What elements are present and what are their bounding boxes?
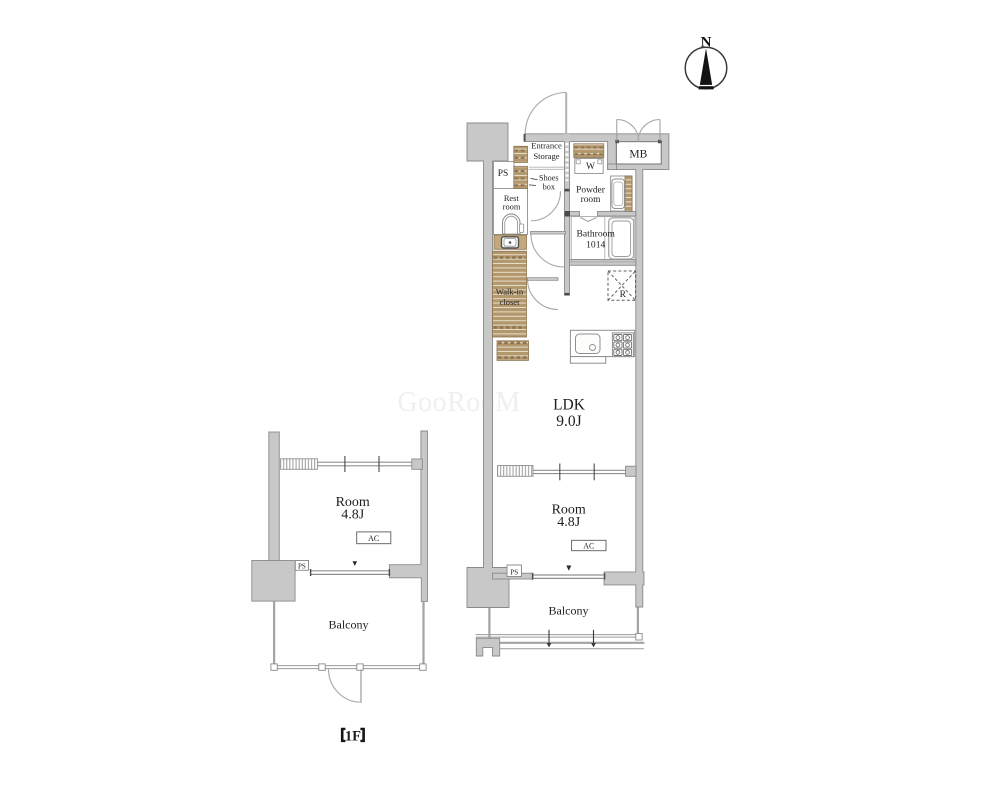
svg-text:closet: closet <box>499 297 520 307</box>
svg-text:Rest: Rest <box>504 194 520 203</box>
svg-text:PS: PS <box>510 569 518 577</box>
svg-text:4.8J: 4.8J <box>557 515 581 530</box>
svg-text:Shoes: Shoes <box>539 174 559 183</box>
svg-text:box: box <box>543 182 555 191</box>
svg-text:PS: PS <box>298 562 306 570</box>
svg-text:room: room <box>503 203 521 212</box>
svg-text:R: R <box>620 290 627 300</box>
svg-text:Balcony: Balcony <box>549 604 589 618</box>
svg-text:MB: MB <box>629 149 647 161</box>
svg-text:Bathroom: Bathroom <box>577 229 616 240</box>
svg-text:W: W <box>586 162 595 172</box>
svg-text:9.0J: 9.0J <box>556 413 581 430</box>
svg-text:AC: AC <box>368 534 379 543</box>
svg-text:N: N <box>701 35 712 51</box>
svg-text:Balcony: Balcony <box>329 618 369 632</box>
svg-text:Walk-in: Walk-in <box>496 287 524 297</box>
svg-text:Storage: Storage <box>533 151 559 161</box>
svg-text:Powder: Powder <box>576 186 606 196</box>
svg-text:GooRooM: GooRooM <box>397 387 520 418</box>
svg-text:LDK: LDK <box>553 397 586 414</box>
svg-text:AC: AC <box>583 542 594 551</box>
svg-text:PS: PS <box>498 169 509 179</box>
svg-text:Entrance: Entrance <box>531 141 562 151</box>
svg-text:1014: 1014 <box>586 239 605 250</box>
svg-text:4.8J: 4.8J <box>341 508 365 523</box>
svg-text:room: room <box>581 195 601 205</box>
svg-text:1F: 1F <box>345 728 361 744</box>
